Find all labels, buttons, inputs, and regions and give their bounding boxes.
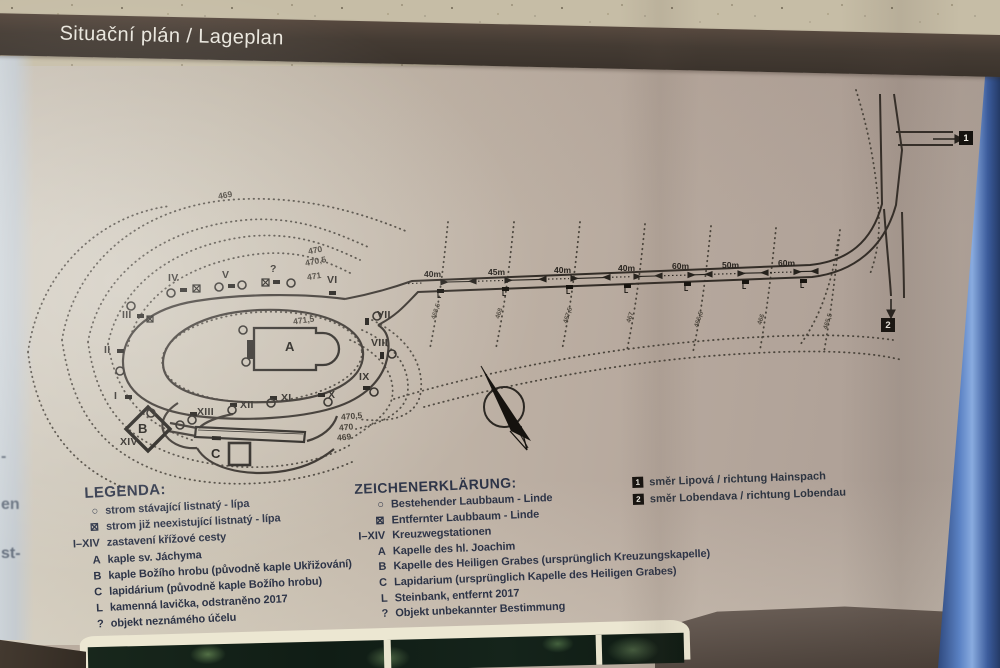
bench-bar xyxy=(800,279,807,283)
bench-label: L xyxy=(624,288,628,295)
distance-label: 50m xyxy=(722,260,739,270)
building-letter: C xyxy=(211,446,220,461)
station-label: XIII xyxy=(197,406,214,418)
station-label: III xyxy=(122,309,132,321)
direction-badge: 1 xyxy=(632,477,643,488)
station-label: VIII xyxy=(371,337,388,349)
legend-czech: LEGENDA: ○ strom stávající listnatý - lí… xyxy=(62,470,389,634)
station-label: XI xyxy=(281,392,292,404)
bench-label: L xyxy=(437,293,441,300)
photo-divider xyxy=(384,640,392,668)
bench-label: L xyxy=(684,286,688,293)
legend-symbol: ? xyxy=(68,616,111,634)
legend-symbol: ⊠ xyxy=(353,513,392,530)
legend-symbol: C xyxy=(356,575,395,592)
legend-symbol: ○ xyxy=(353,497,392,514)
distance-label: 40m xyxy=(424,269,441,279)
contour-label: 470,5 xyxy=(341,410,363,422)
station-label: VII xyxy=(377,309,391,321)
bench-label: L xyxy=(566,289,570,296)
station-label: VI xyxy=(327,274,338,286)
bench-bar xyxy=(437,289,444,293)
building-letter: B xyxy=(138,421,147,436)
station-label: V xyxy=(222,269,229,281)
bench-bar xyxy=(566,285,573,289)
bench-label: L xyxy=(742,284,746,291)
page-title: Situační plán / Lageplan xyxy=(59,23,284,51)
legend-symbol: B xyxy=(355,560,394,577)
legend-symbol: ? xyxy=(357,607,396,624)
destination-badge: 1 xyxy=(959,131,973,145)
information-board-photo: IIIIIIIVV?VIVIIVIIIIXXXIXIIXIIIXIV 46947… xyxy=(0,0,1000,668)
legend-symbol: L xyxy=(356,591,395,608)
distance-label: 40m xyxy=(618,263,635,273)
bench-bar xyxy=(502,287,509,291)
station-label: XII xyxy=(240,399,254,411)
station-label: XIV xyxy=(120,436,138,448)
station-label: ? xyxy=(270,263,277,275)
edge-fragment: st- xyxy=(1,545,21,563)
station-label: II xyxy=(104,344,110,356)
bench-bar xyxy=(684,282,691,286)
bench-label: L xyxy=(800,283,804,290)
edge-fragment: en xyxy=(1,496,20,514)
bench-bar xyxy=(742,280,749,284)
contour-label: 469 xyxy=(337,431,352,442)
distance-label: 45m xyxy=(488,267,505,277)
photo-divider xyxy=(596,635,603,665)
bench-label: L xyxy=(502,291,506,298)
building-letter: A xyxy=(285,339,294,354)
station-label: IV xyxy=(168,272,179,284)
legend-symbol: I–XIV xyxy=(354,529,393,546)
station-label: X xyxy=(328,389,335,401)
station-label: IX xyxy=(359,371,370,383)
legend-symbol: A xyxy=(355,544,394,561)
bench-bar xyxy=(624,284,631,288)
distance-label: 60m xyxy=(778,258,795,268)
destination-badge: 2 xyxy=(881,318,895,332)
edge-fragment: - xyxy=(1,448,6,466)
station-label: I xyxy=(114,390,117,402)
distance-label: 60m xyxy=(672,261,689,271)
direction-badge: 2 xyxy=(633,494,644,505)
distance-label: 40m xyxy=(554,265,571,275)
